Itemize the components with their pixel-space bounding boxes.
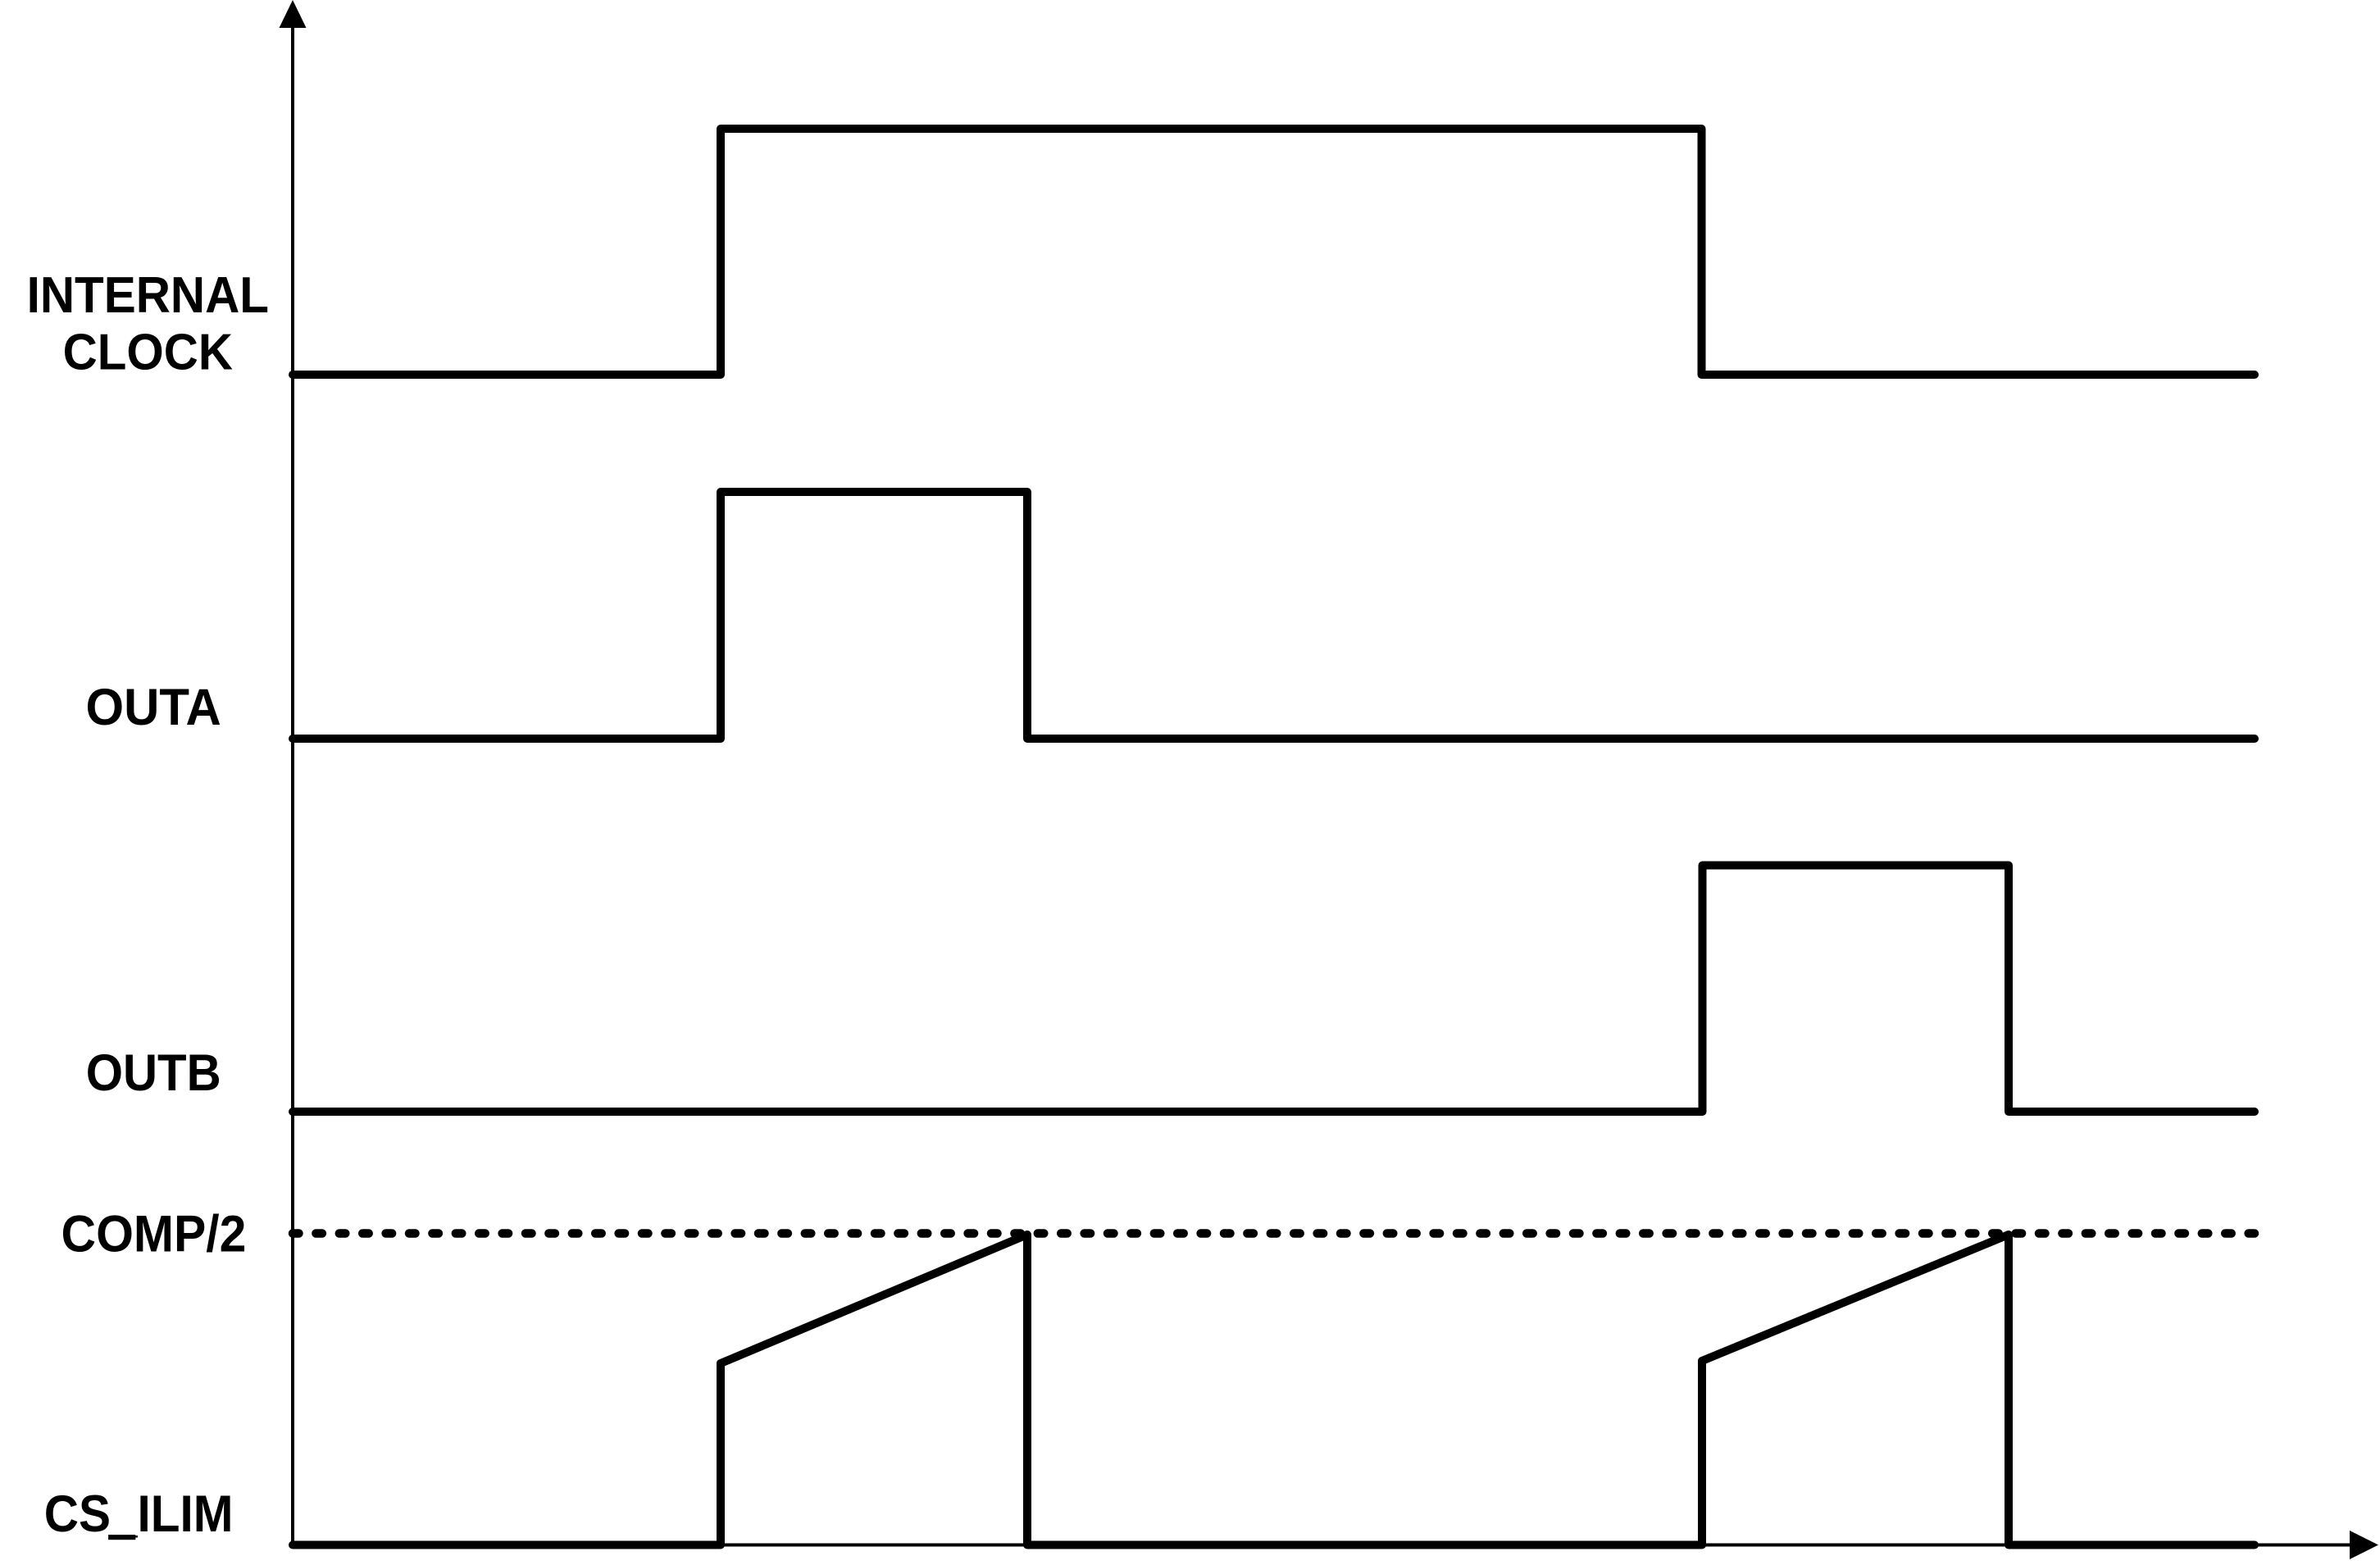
svg-text:COMP/2: COMP/2	[61, 1206, 247, 1263]
svg-text:CLOCK: CLOCK	[63, 325, 234, 381]
svg-text:OUTA: OUTA	[86, 679, 221, 736]
svg-text:CS_ILIM: CS_ILIM	[44, 1485, 234, 1543]
svg-text:OUTB: OUTB	[86, 1044, 221, 1102]
svg-text:INTERNAL: INTERNAL	[27, 267, 269, 324]
